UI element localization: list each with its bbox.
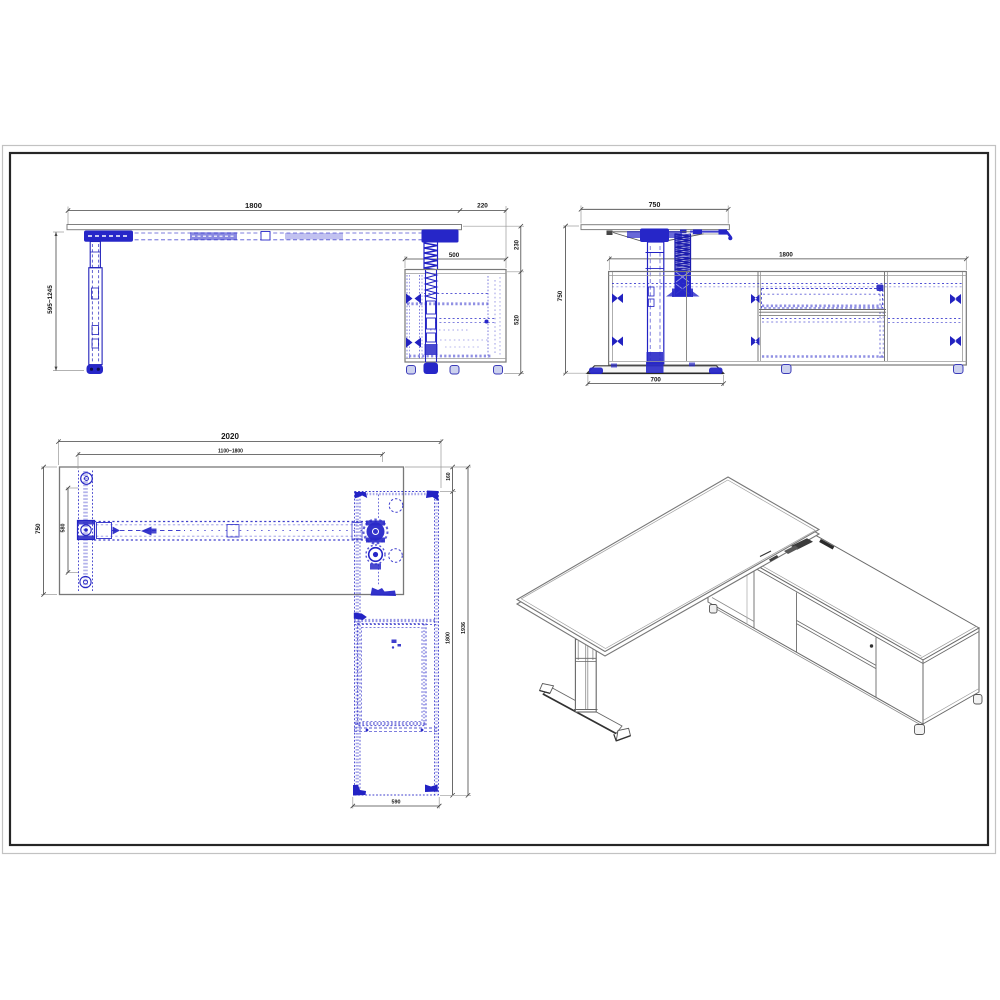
svg-text:500: 500	[449, 252, 460, 259]
svg-text:750: 750	[649, 202, 661, 209]
svg-text:520: 520	[515, 314, 521, 325]
svg-text:1100~1800: 1100~1800	[218, 448, 243, 454]
svg-text:750: 750	[557, 290, 564, 301]
svg-text:1800: 1800	[245, 201, 262, 210]
svg-text:2020: 2020	[221, 432, 239, 441]
svg-text:580: 580	[61, 524, 67, 533]
svg-text:160: 160	[446, 472, 452, 481]
svg-text:590: 590	[392, 800, 401, 806]
svg-text:595~1245: 595~1245	[47, 285, 54, 314]
svg-text:750: 750	[35, 523, 42, 534]
svg-text:230: 230	[515, 239, 521, 250]
svg-text:1800: 1800	[446, 632, 452, 644]
svg-text:1936: 1936	[461, 622, 467, 634]
svg-text:700: 700	[651, 376, 662, 383]
svg-text:220: 220	[477, 203, 488, 210]
svg-text:1800: 1800	[779, 251, 793, 258]
